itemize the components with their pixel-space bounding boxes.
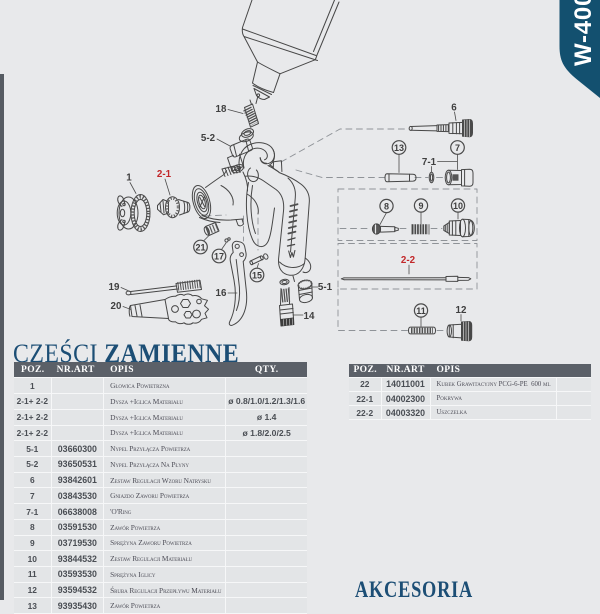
svg-text:W-400: W-400 xyxy=(570,0,597,66)
svg-text:15: 15 xyxy=(252,271,262,281)
svg-text:5-1: 5-1 xyxy=(318,282,333,293)
svg-text:19: 19 xyxy=(109,282,120,293)
svg-text:11: 11 xyxy=(416,306,426,316)
svg-text:14: 14 xyxy=(304,311,315,322)
svg-text:17: 17 xyxy=(214,252,224,262)
svg-text:8: 8 xyxy=(384,202,389,212)
svg-text:16: 16 xyxy=(216,288,227,299)
svg-text:18: 18 xyxy=(216,104,227,115)
svg-text:21: 21 xyxy=(195,243,205,253)
svg-text:10: 10 xyxy=(453,201,463,211)
svg-text:9: 9 xyxy=(418,201,423,211)
svg-text:13: 13 xyxy=(394,143,404,153)
svg-text:5-2: 5-2 xyxy=(201,133,216,144)
svg-text:2-1: 2-1 xyxy=(157,169,172,180)
svg-text:1: 1 xyxy=(126,173,132,184)
svg-text:2-2: 2-2 xyxy=(401,255,416,266)
svg-text:20: 20 xyxy=(111,301,122,312)
svg-text:7-1: 7-1 xyxy=(422,157,437,168)
svg-text:7: 7 xyxy=(455,143,460,153)
